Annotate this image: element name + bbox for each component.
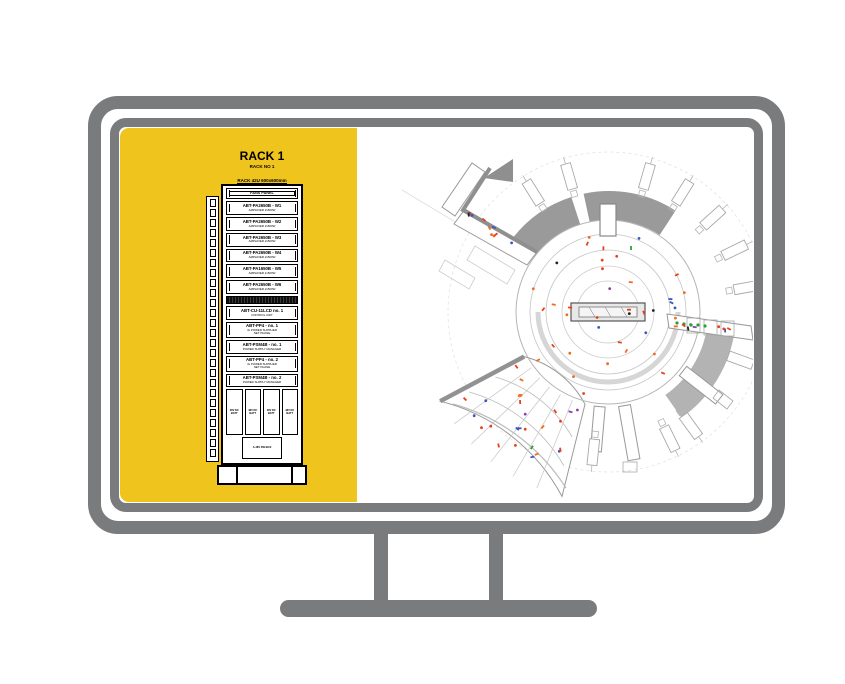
rack-module: FANS PANEL xyxy=(226,188,298,199)
rack-cabinet: FANS PANELABT-PA2650B - W1AMPLIFIER 2x50… xyxy=(221,184,303,465)
base-divider xyxy=(236,467,238,483)
device-marker xyxy=(661,371,665,374)
ladder-slot xyxy=(210,259,216,267)
device-marker xyxy=(497,443,500,447)
hub-core xyxy=(571,303,645,321)
rack-module: ABT-PA2650B - W3AMPLIFIER 2x500W xyxy=(226,233,298,247)
device-marker xyxy=(532,287,535,290)
floor-plan-svg xyxy=(357,128,753,502)
floor-plan-area xyxy=(357,128,753,502)
device-marker xyxy=(606,362,609,365)
device-marker xyxy=(530,456,534,458)
rack-panel: RACK 1 RACK NO 1 RACK 42U 600x600mm FANS… xyxy=(120,128,357,502)
ladder-slot xyxy=(210,309,216,317)
device-marker xyxy=(683,291,686,294)
device-marker xyxy=(618,341,622,343)
ladder-slot xyxy=(210,319,216,327)
ladder-slot xyxy=(210,429,216,437)
rack-module: ABT-PA2650B - W2AMPLIFIER 2x500W xyxy=(226,217,298,231)
device-marker xyxy=(597,326,600,329)
device-marker xyxy=(596,316,599,319)
device-marker xyxy=(489,425,492,428)
ladder-slot xyxy=(210,419,216,427)
top-gate-stub xyxy=(600,204,616,236)
ladder-slot xyxy=(210,269,216,277)
cable-ladder xyxy=(206,196,219,462)
device-marker xyxy=(674,317,677,320)
rack-module: ABT-PA2650B - W6AMPLIFIER 2x500W xyxy=(226,280,298,294)
device-marker xyxy=(473,414,476,417)
device-marker xyxy=(669,301,673,304)
device-marker xyxy=(630,246,632,250)
monitor-screen: RACK 1 RACK NO 1 RACK 42U 600x600mm FANS… xyxy=(120,128,753,502)
rack-module: ABT-PSM4B - no. 2POWER SUPPLY MANAGER xyxy=(226,374,298,388)
rack-module: ABT-PP4 - no. 14x POWER SUPPLIERNET PHAS… xyxy=(226,322,298,338)
rack-module: ABT-PA2650B - W1AMPLIFIER 2x500W xyxy=(226,201,298,215)
switch-box: A-48V SW BOX xyxy=(242,437,282,459)
device-marker xyxy=(576,409,579,412)
base-divider xyxy=(291,467,293,483)
device-marker xyxy=(552,303,556,305)
ladder-slot xyxy=(210,289,216,297)
ladder-slot xyxy=(210,299,216,307)
device-marker xyxy=(490,233,493,236)
device-marker xyxy=(722,328,725,331)
device-marker xyxy=(480,426,483,429)
device-marker xyxy=(524,413,527,416)
device-marker xyxy=(674,307,677,310)
ladder-slot xyxy=(210,279,216,287)
ladder-slot xyxy=(210,239,216,247)
ladder-slot xyxy=(210,229,216,237)
device-marker xyxy=(624,349,628,353)
ladder-slot xyxy=(210,389,216,397)
device-marker xyxy=(555,262,558,265)
battery-slot: 48V DC BATT xyxy=(263,389,280,435)
device-marker xyxy=(601,259,604,262)
ladder-slot xyxy=(210,249,216,257)
device-marker xyxy=(524,428,527,431)
rack-module: ABT-CU-11LCD no. 1CONTROL UNIT xyxy=(226,306,298,320)
device-marker xyxy=(628,312,631,315)
rack-module: ABT-PP4 - no. 24x POWER SUPPLIERNET PHAS… xyxy=(226,356,298,372)
ladder-slot xyxy=(210,409,216,417)
device-marker xyxy=(653,353,656,356)
device-marker xyxy=(644,331,647,334)
device-marker xyxy=(689,323,692,326)
rack-module: ABT-PA1650B - W5AMPLIFIER 1x500W xyxy=(226,264,298,278)
ladder-slot xyxy=(210,379,216,387)
ladder-slot xyxy=(210,219,216,227)
rack-module: ABT-PA2650B - W4AMPLIFIER 2x500W xyxy=(226,249,298,263)
device-marker xyxy=(586,242,589,246)
device-marker xyxy=(518,394,522,396)
monitor-stand-neck-left xyxy=(374,532,388,608)
device-marker xyxy=(510,242,513,245)
ladder-slot xyxy=(210,329,216,337)
ladder-slot xyxy=(210,209,216,217)
rack-diagram: RACK 1 RACK NO 1 RACK 42U 600x600mm FANS… xyxy=(204,150,326,494)
device-marker xyxy=(602,246,604,250)
ladder-slot xyxy=(210,399,216,407)
battery-slot: 48V DC BATT xyxy=(226,389,243,435)
device-marker xyxy=(629,281,633,283)
device-marker xyxy=(582,392,585,395)
battery-slot: 48V DC BATT xyxy=(245,389,262,435)
device-marker xyxy=(627,309,631,311)
device-marker xyxy=(601,267,604,270)
device-marker xyxy=(572,375,575,378)
battery-slot: 48V DC BATT xyxy=(282,389,299,435)
rack-title: RACK 1 xyxy=(221,150,303,163)
device-marker xyxy=(559,420,562,423)
rack-title-block: RACK 1 RACK NO 1 RACK 42U 600x600mm xyxy=(221,150,303,187)
rack-module: ABT-PSM4B - no. 1POWER SUPPLY MANAGER xyxy=(226,340,298,354)
rack-vent-module xyxy=(226,296,298,304)
monitor-stand-base xyxy=(280,600,597,617)
ladder-slot xyxy=(210,359,216,367)
ladder-slot xyxy=(210,349,216,357)
device-marker xyxy=(471,214,474,217)
device-marker xyxy=(568,352,571,355)
device-marker xyxy=(717,325,720,328)
ladder-slot xyxy=(210,369,216,377)
device-marker xyxy=(519,400,521,404)
monitor-stand-neck-right xyxy=(489,532,503,608)
ladder-slot xyxy=(210,199,216,207)
rack-rows: FANS PANELABT-PA2650B - W1AMPLIFIER 2x50… xyxy=(226,188,298,461)
ladder-slot xyxy=(210,449,216,457)
device-marker xyxy=(652,309,655,312)
device-marker xyxy=(638,237,641,240)
ladder-slot xyxy=(210,339,216,347)
device-marker xyxy=(608,287,611,290)
bottom-box-row: A-48V SW BOX xyxy=(226,437,298,461)
ladder-slot xyxy=(210,439,216,447)
device-marker xyxy=(566,313,569,316)
device-marker xyxy=(668,298,672,300)
corridor xyxy=(402,159,537,289)
device-marker xyxy=(674,325,678,327)
device-marker xyxy=(468,213,470,217)
device-marker xyxy=(588,236,591,239)
device-marker xyxy=(541,307,545,311)
device-marker xyxy=(615,255,618,258)
illustration-canvas: RACK 1 RACK NO 1 RACK 42U 600x600mm FANS… xyxy=(0,0,845,684)
device-marker xyxy=(514,444,517,447)
battery-row: 48V DC BATT48V DC BATT48V DC BATT48V DC … xyxy=(226,389,298,435)
device-marker xyxy=(551,344,555,348)
device-marker xyxy=(484,399,487,402)
rack-base-plinth xyxy=(217,465,307,485)
